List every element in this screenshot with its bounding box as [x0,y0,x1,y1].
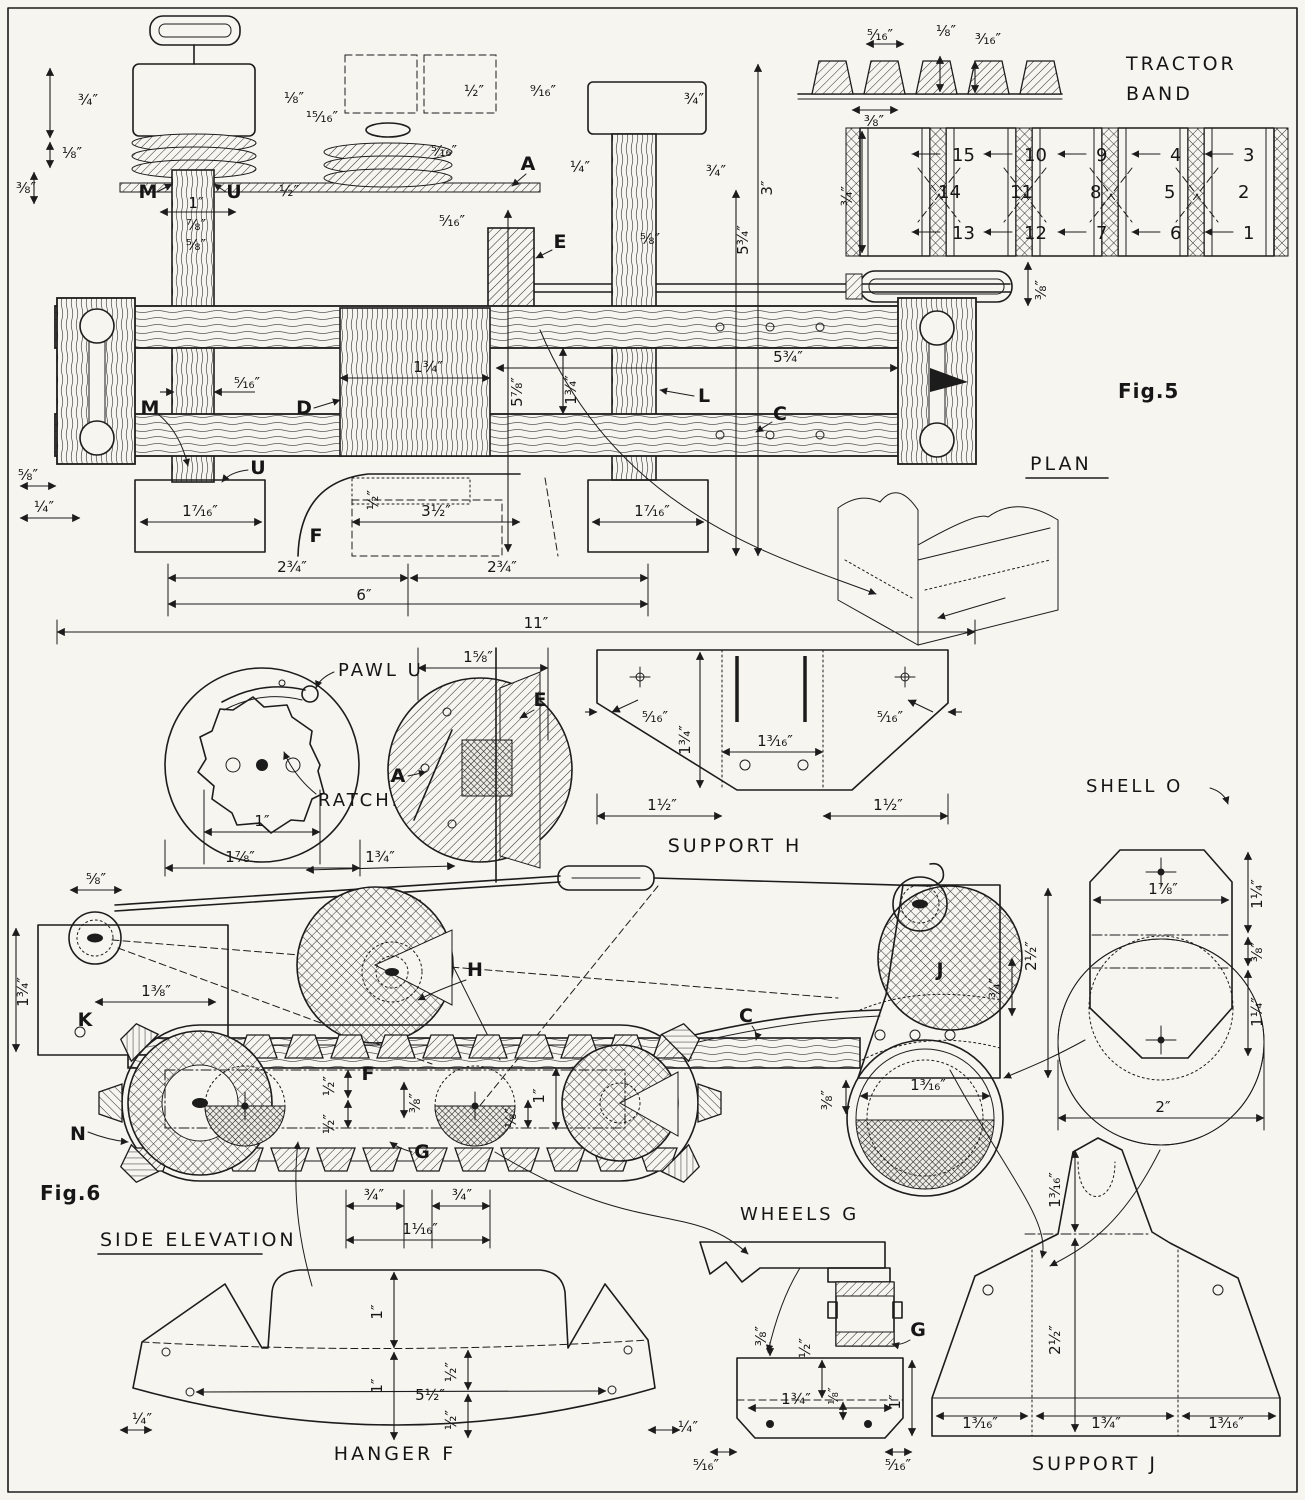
dim-wheels-1: ½″ [796,1338,814,1359]
band-num-7: 8 [1090,182,1101,203]
dim-support-h-6: 1½″ [873,796,903,814]
dim-wheels-3: ⅛″ [827,1387,842,1405]
dim-shell-2: ⅜″ [1248,942,1266,963]
dim-plan-8: ½″ [279,182,300,200]
band-num-13: 6 [1170,223,1181,244]
part-label-u2: U [250,457,265,479]
dim-supj-4: 1³⁄₁₆″ [1208,1414,1244,1432]
dim-side-4: ½″ [320,1076,338,1097]
dim-plan-7: ¹⁵⁄₁₆″ [306,108,339,126]
dim-wheels-6: ⁵⁄₁₆″ [885,1456,912,1474]
dim-plan-29: 1⁷⁄₁₆″ [634,502,670,520]
dim-plan-28: 3½″ [421,502,451,520]
part-label-g2: G [910,1319,926,1341]
dim-plan-19: ⁵⁄₁₆″ [234,374,261,392]
dim-ratchet-1: 1⅞″ [225,848,255,866]
dim-hanger-6: ¼″ [678,1418,699,1436]
dim-plan-16: 3″ [758,180,776,196]
part-label-e1: E [554,231,567,253]
dim-shell-3: 1¼″ [1248,997,1266,1027]
dim-plan-13: ¼″ [570,158,591,176]
band-num-8: 5 [1164,182,1175,203]
part-label-e2: E [534,689,547,711]
dim-wheels-0: ⅜″ [752,1326,770,1347]
part-label-a1: A [521,153,536,175]
dim-plan-18: ⅝″ [640,230,661,248]
drawing-sheet: ¾″ ⅛″ ⅜″ 1″ ⅞″ ⅝″ ⅛″ ¹⁵⁄₁₆″ ½″ ⁵⁄₁₆″ ⁵⁄₁… [0,0,1305,1500]
dim-shell-0: 1⅞″ [1148,880,1178,898]
dim-support-h-4: ⁵⁄₁₆″ [877,708,904,726]
dim-plan-33: 11″ [524,614,549,632]
band-num-3: 4 [1170,145,1181,166]
dim-side-6: ⅜″ [406,1093,424,1114]
dim-plan-12: ⁹⁄₁₆″ [530,82,557,100]
wheels-g-detail: WHEELS G G ⅜″ ½″ 1¾″ ⅛″ 1″ ⁵⁄₁₆″ ⁵⁄₁₆″ [495,1152,926,1474]
dim-plan-9: ⁵⁄₁₆″ [431,142,458,160]
part-label-h: H [467,959,483,981]
part-label-c2: C [739,1005,753,1027]
dim-plan-11: ½″ [464,82,485,100]
band-num-1: 10 [1024,145,1047,166]
dim-wheels-2: 1¾″ [781,1390,811,1408]
dim-support-h-1: ⁵⁄₁₆″ [642,708,669,726]
dim-support-h-5: 1½″ [647,796,677,814]
dim-supj-1: 2½″ [1046,1325,1064,1355]
dim-side-13: 2½″ [1022,941,1040,971]
band-num-4: 3 [1243,145,1254,166]
part-label-j: J [934,959,943,981]
dim-supj-3: 1¾″ [1091,1414,1121,1432]
dim-plan-24: ⅝″ [18,466,39,484]
dim-hanger-4: ½″ [442,1410,460,1431]
dim-plan-0: ¾″ [78,91,99,109]
fig6-label: Fig.6 [40,1181,101,1205]
hanger-f-detail: 1″ 1″ 5½″ ½″ ½″ ¼″ ¼″ HANGER F [120,1142,698,1465]
fig5-plan-view: ¾″ ⅛″ ⅜″ 1″ ⅞″ ⅝″ ⅛″ ¹⁵⁄₁₆″ ½″ ⁵⁄₁₆″ ⁵⁄₁… [16,16,1179,644]
dim-support-h-3: 1³⁄₁₆″ [757,732,793,750]
dim-hanger-3: ½″ [442,1362,460,1383]
side-elevation-label: SIDE ELEVATION [100,1229,297,1251]
dim-supj-0: 1³⁄₁₆″ [1046,1172,1064,1208]
dim-plan-23: 5¾″ [773,348,803,366]
dim-plan-26: 1⁷⁄₁₆″ [182,502,218,520]
hanger-f-title: HANGER F [334,1443,456,1465]
part-label-l: L [698,385,710,407]
dim-side-3: 1⅜″ [141,982,171,1000]
band-num-0: 15 [952,145,975,166]
dim-plan-17: 5¾″ [734,225,752,255]
wheels-g-title: WHEELS G [740,1204,859,1225]
part-label-m2: M [141,397,160,419]
dim-plan-27: ½″ [364,490,382,511]
dim-side-0: ⅝″ [86,870,107,888]
dim-side-10: ¾″ [452,1186,473,1204]
dim-plan-10: ⁵⁄₁₆″ [439,212,466,230]
dim-side-2: 1¾″ [14,977,32,1007]
band-num-14: 1 [1243,223,1254,244]
band-num-9: 2 [1238,182,1249,203]
part-label-c1: C [773,403,787,425]
dim-side-14: ⅜″ [818,1090,836,1111]
part-label-k: K [78,1009,94,1031]
dim-support-h-0: 1⅝″ [463,648,493,666]
dim-hanger-5: ¼″ [132,1410,153,1428]
dim-side-8: ⅛″ [502,1108,520,1129]
support-j-title: SUPPORT J [1032,1453,1158,1475]
dim-side-15: 1³⁄₁₆″ [910,1076,946,1094]
tractor-band-title-1: TRACTOR [1125,53,1237,75]
band-num-12: 7 [1096,223,1107,244]
dim-plan-15: ¾″ [706,162,727,180]
dim-plan-4: ⅞″ [186,216,207,234]
dim-side-1: 1¾″ [365,848,395,866]
dim-wheels-5: ⁵⁄₁₆″ [693,1456,720,1474]
fig6-side-elevation: ⅝″ 1¾″ 1¾″ 1⅜″ ½″ ½″ ⅜″ 1″ ⅛″ ¾″ ¾″ 1¹⁄₁… [14,848,1048,1254]
fig5-label: Fig.5 [1118,379,1179,403]
dim-plan-20: 1¾″ [413,358,443,376]
part-label-u1: U [226,181,241,203]
band-width: ¾″ [838,186,856,207]
band-num-6: 11 [1010,182,1033,203]
band-num-2: 9 [1096,145,1107,166]
dim-side-9: ¾″ [364,1186,385,1204]
dim-plan-31: 2¾″ [487,558,517,576]
dim-shell-4: 2″ [1155,1098,1171,1116]
pawl-label: PAWL U [338,660,424,681]
part-label-n: N [70,1123,86,1145]
band-tread-height: ³⁄₁₆″ [975,30,1002,48]
dim-plan-25: ¼″ [34,498,55,516]
tractor-band-detail: ⁵⁄₁₆″ ⅛″ ³⁄₁₆″ ⅜″ [798,22,1288,306]
dim-plan-5: ⅝″ [186,236,207,254]
dim-wheels-4: 1″ [886,1394,904,1410]
dim-supj-2: 1³⁄₁₆″ [962,1414,998,1432]
band-num-10: 13 [952,223,975,244]
dim-ratchet-0: 1″ [254,812,270,830]
dim-plan-21: 5⅞″ [508,377,526,407]
part-label-f2: F [362,1063,375,1085]
dim-shell-1: 1¼″ [1248,879,1266,909]
dim-plan-30: 2¾″ [277,558,307,576]
dim-plan-32: 6″ [356,586,372,604]
dim-side-7: 1″ [530,1088,548,1104]
part-label-a2: A [391,765,406,787]
dim-plan-2: ⅜″ [16,179,37,197]
shell-o-detail: SHELL O 1⅞″ 1¼″ ⅜″ 1¼″ 2″ [1058,776,1266,1145]
dim-hanger-0: 1″ [368,1304,386,1320]
band-num-5: 14 [938,182,961,203]
part-label-f1: F [310,525,323,547]
band-gap: ⅜″ [1032,280,1050,301]
part-label-d: D [296,397,312,419]
dim-side-11: 1¹⁄₁₆″ [402,1220,438,1238]
tractor-band-title-2: BAND [1126,83,1193,105]
support-h-3d-sketch [838,493,1058,645]
winch-disc-detail: 1⅝″ A E [388,648,572,882]
dim-plan-6: ⅛″ [284,89,305,107]
dim-side-12: ¾″ [986,978,1004,999]
band-plates [846,128,1288,256]
dim-hanger-2: 5½″ [415,1386,445,1404]
shell-o-title: SHELL O [1086,776,1183,797]
dim-support-h-2: 1¾″ [676,725,694,755]
part-label-m1: M [139,181,158,203]
band-tread-pitch: ⁵⁄₁₆″ [867,26,894,44]
dim-side-5: ½″ [320,1114,338,1135]
plan-label: PLAN [1030,453,1092,475]
support-h-holes [630,667,915,687]
dim-plan-3: 1″ [188,194,204,212]
band-num-11: 12 [1024,223,1047,244]
band-tread-top: ⅛″ [936,22,957,40]
dim-plan-14: ¾″ [684,90,705,108]
dim-plan-1: ⅛″ [62,144,83,162]
part-label-g1: G [414,1141,430,1163]
support-j-detail: 1³⁄₁₆″ 2½″ 1³⁄₁₆″ 1¾″ 1³⁄₁₆″ SUPPORT J [932,1040,1280,1475]
support-h-title: SUPPORT H [668,835,803,857]
technical-drawing: ¾″ ⅛″ ⅜″ 1″ ⅞″ ⅝″ ⅛″ ¹⁵⁄₁₆″ ½″ ⁵⁄₁₆″ ⁵⁄₁… [0,0,1305,1500]
